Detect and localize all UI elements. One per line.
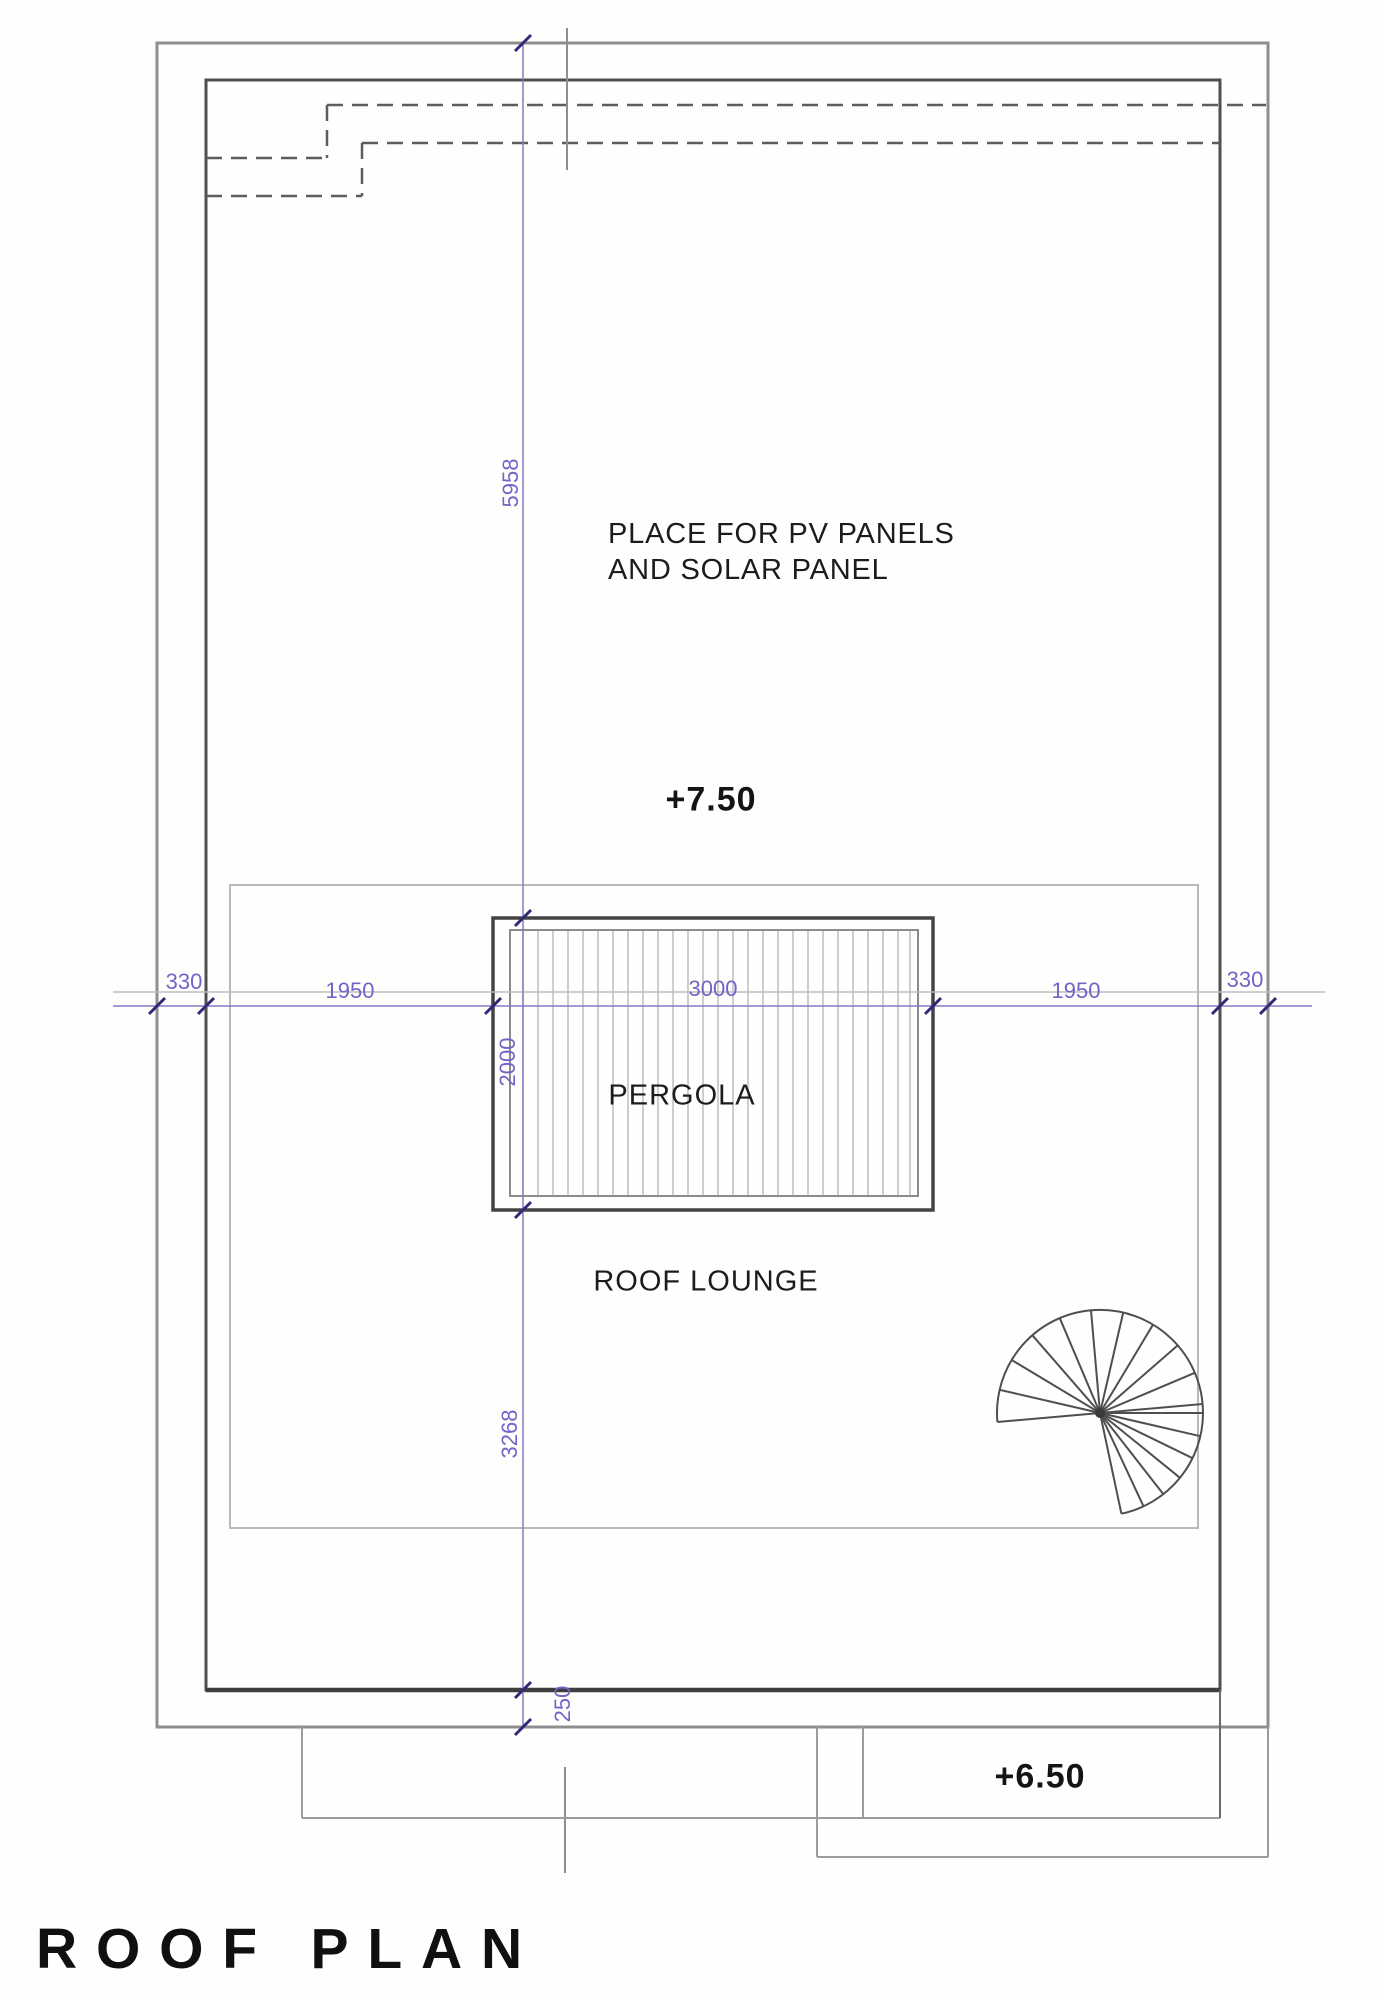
hidden-roof-edge-dashed [206,105,1266,196]
pergola-inner-frame [510,930,918,1196]
dim-label-250: 250 [550,1686,576,1723]
pergola-outline [493,918,933,1210]
roof-plan-sheet: PLACE FOR PV PANELS AND SOLAR PANEL +7.5… [0,0,1378,2000]
upper-roof-level-label: +7.50 [665,781,756,820]
dim-label-330-right: 330 [1227,967,1264,993]
pv-panels-label-line2: AND SOLAR PANEL [608,552,955,588]
dim-label-2000: 2000 [495,1038,521,1087]
lower-roof-outline [302,1690,1268,1857]
pv-panels-label: PLACE FOR PV PANELS AND SOLAR PANEL [608,516,955,588]
roof-lounge-label: ROOF LOUNGE [593,1266,818,1299]
dim-label-1950-right: 1950 [1052,978,1101,1004]
lower-roof-level-label: +6.50 [994,1758,1085,1797]
roof-plan-title: ROOF PLAN [36,1916,541,1982]
spiral-stair [997,1310,1203,1514]
dim-label-330-left: 330 [166,969,203,995]
pergola-label: PERGOLA [608,1080,755,1113]
dim-label-3000: 3000 [689,976,738,1002]
pv-panels-label-line1: PLACE FOR PV PANELS [608,516,955,552]
dim-label-3268: 3268 [497,1410,523,1459]
dim-label-1950-left: 1950 [326,978,375,1004]
dim-label-5958: 5958 [498,459,524,508]
pergola-hatch [523,931,910,1195]
